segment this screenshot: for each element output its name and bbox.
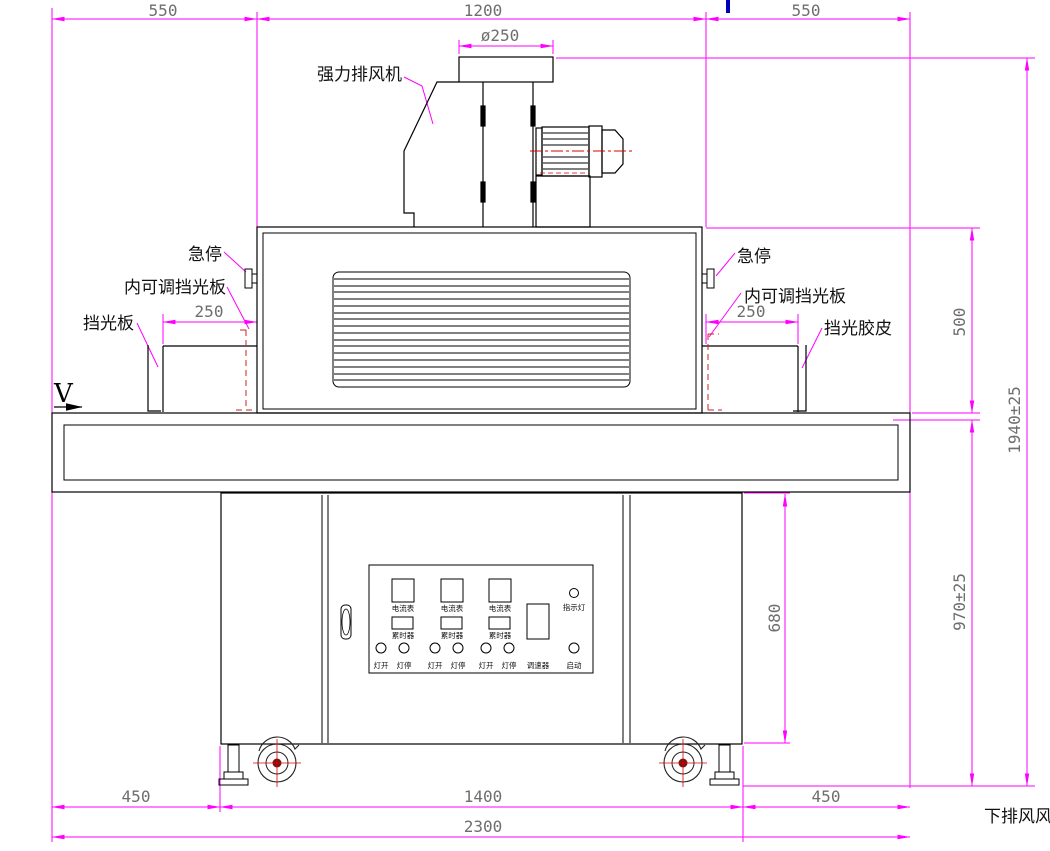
duct-tick <box>481 182 485 202</box>
label-lamp-on-2: 灯开 <box>428 660 443 670</box>
callout-texts: 强力排风机 急停 内可调挡光板 挡光板 急停 内可调挡光板 挡光胶皮 下排风风 … <box>53 65 1050 827</box>
uv-chamber <box>257 227 702 413</box>
label-start: 启动 <box>567 660 582 670</box>
leveling-foot-left <box>219 745 248 785</box>
start-button[interactable] <box>569 643 579 653</box>
cabinet-door-edges <box>322 495 630 743</box>
dim-flange-diameter: ø250 <box>481 26 520 45</box>
lamp-off-button-1[interactable] <box>399 643 409 653</box>
label-ammeter-2: 电流表 <box>441 603 464 613</box>
shield-plate-left <box>148 345 161 411</box>
lamp-on-button-1[interactable] <box>376 643 386 653</box>
speed-controller-knob[interactable] <box>527 604 549 639</box>
label-exhaust-fan: 强力排风机 <box>317 65 402 85</box>
door-handle-recess <box>342 609 350 635</box>
adjustable-shield-hidden-lines <box>236 330 722 410</box>
label-lamp-off-3: 灯停 <box>502 660 517 670</box>
dim-bottom-right: 450 <box>812 787 841 806</box>
ammeter-3[interactable] <box>489 579 511 602</box>
motor-end-ring <box>589 126 602 177</box>
label-lamp-on-1: 灯开 <box>374 660 389 670</box>
dim-bottom-mid: 1400 <box>464 787 503 806</box>
control-panel-face <box>369 565 593 673</box>
dim-top-left: 550 <box>149 1 178 20</box>
dim-bottom-left: 450 <box>122 787 151 806</box>
dim-chamber-height: 500 <box>950 308 969 337</box>
timer-1[interactable] <box>392 617 413 629</box>
leader-shield-rubber <box>802 328 822 368</box>
lamp-off-button-3[interactable] <box>504 643 514 653</box>
label-estop-left: 急停 <box>188 245 222 265</box>
cabinet <box>221 493 742 744</box>
lamp-off-button-2[interactable] <box>453 643 463 653</box>
conveyor-belt <box>64 425 898 480</box>
label-indicator: 指示灯 <box>563 602 586 612</box>
vent-grille-louvers <box>334 279 629 380</box>
label-speed-controller: 调速器 <box>527 661 550 670</box>
label-timer-1: 累时器 <box>392 630 415 640</box>
dimension-lines <box>52 19 1027 837</box>
estop-button-right <box>702 269 714 288</box>
dim-cabinet-height: 680 <box>765 604 784 633</box>
label-adj-shield-left: 内可调挡光板 <box>124 278 226 298</box>
motor-end-cap <box>602 130 623 173</box>
duct-tick <box>531 106 535 126</box>
label-lamp-off-1: 灯停 <box>397 660 412 670</box>
ammeter-1[interactable] <box>392 579 414 602</box>
dim-overall-width: 2300 <box>464 817 503 836</box>
vent-grille <box>333 272 630 387</box>
label-lamp-off-2: 灯停 <box>451 660 466 670</box>
label-shield-rubber: 挡光胶皮 <box>824 319 892 339</box>
dim-top-mid: 1200 <box>464 1 503 20</box>
leader-adj-shield-left <box>227 287 249 329</box>
dim-work-height: 970±25 <box>950 573 969 631</box>
label-shield-left: 挡光板 <box>83 314 134 334</box>
ammeter-2[interactable] <box>441 579 463 602</box>
shield-rubber-right-plate <box>793 345 806 411</box>
label-timer-3: 累时器 <box>489 630 512 640</box>
leveling-foot-right <box>710 745 739 785</box>
drawing-canvas: 550 1200 550 ø250 250 250 500 1940±25 97… <box>0 0 1050 851</box>
panel-texts: 电流表 电流表 电流表 累时器 累时器 累时器 指示灯 灯开 灯停 灯开 灯停 … <box>374 602 586 670</box>
timer-2[interactable] <box>441 617 462 629</box>
motor-flange <box>536 128 542 175</box>
leader-estop-left <box>224 252 246 272</box>
estop-button-left <box>245 269 257 288</box>
label-ammeter-3: 电流表 <box>489 603 512 613</box>
engineering-drawing: 550 1200 550 ø250 250 250 500 1940±25 97… <box>0 0 1050 851</box>
callout-leader-lines <box>137 77 822 368</box>
lamp-on-button-3[interactable] <box>481 643 491 653</box>
fan-base-box <box>536 176 590 227</box>
indicator-lamp <box>570 589 579 598</box>
duct-tick <box>531 182 535 202</box>
uv-chamber-inner-panel <box>263 233 696 409</box>
timer-3[interactable] <box>489 617 510 629</box>
dim-overall-height: 1940±25 <box>1005 386 1024 453</box>
lamp-on-button-2[interactable] <box>430 643 440 653</box>
leader-estop-right <box>716 253 735 276</box>
label-timer-2: 累时器 <box>441 630 464 640</box>
label-lamp-on-3: 灯开 <box>479 660 494 670</box>
label-direction-v: V <box>53 379 74 409</box>
tunnel-right <box>702 346 798 412</box>
label-estop-right: 急停 <box>737 247 771 267</box>
control-panel <box>369 565 593 673</box>
blue-mark <box>726 0 730 13</box>
label-adj-shield-right: 内可调挡光板 <box>744 287 846 307</box>
door-handle <box>341 605 351 639</box>
label-ammeter-1: 电流表 <box>392 603 415 613</box>
fan-housing <box>404 82 459 227</box>
duct-tick <box>481 106 485 126</box>
machine-outline <box>52 57 910 785</box>
exhaust-flange <box>459 57 553 82</box>
dim-tunnel-left: 250 <box>195 302 224 321</box>
dim-top-right: 550 <box>792 1 821 20</box>
tunnel-left <box>163 346 257 412</box>
label-bottom-exhaust: 下排风风 <box>984 807 1050 827</box>
